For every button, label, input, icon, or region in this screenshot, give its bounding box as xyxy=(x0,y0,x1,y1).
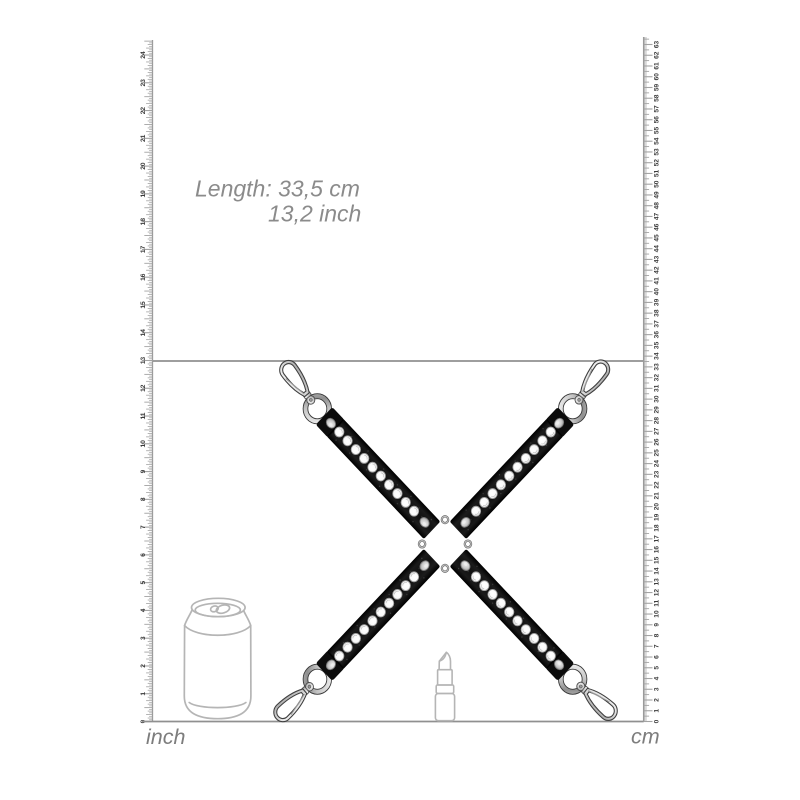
svg-text:6: 6 xyxy=(140,553,147,557)
svg-text:23: 23 xyxy=(654,470,661,478)
svg-text:39: 39 xyxy=(654,298,661,306)
svg-text:40: 40 xyxy=(654,288,661,296)
svg-text:24: 24 xyxy=(654,460,661,468)
svg-text:54: 54 xyxy=(654,137,661,145)
svg-text:22: 22 xyxy=(140,107,147,115)
svg-text:7: 7 xyxy=(140,525,147,529)
svg-text:45: 45 xyxy=(654,234,661,242)
svg-text:28: 28 xyxy=(654,417,661,425)
svg-text:17: 17 xyxy=(654,535,661,543)
svg-text:34: 34 xyxy=(654,352,661,360)
svg-text:16: 16 xyxy=(140,273,147,281)
svg-text:60: 60 xyxy=(654,73,661,81)
svg-text:5: 5 xyxy=(140,580,147,584)
svg-text:1: 1 xyxy=(140,692,147,696)
svg-text:57: 57 xyxy=(654,105,661,113)
svg-text:6: 6 xyxy=(654,655,661,659)
svg-text:36: 36 xyxy=(654,331,661,339)
svg-text:0: 0 xyxy=(654,719,661,723)
svg-text:Length: 33,5 cm: Length: 33,5 cm xyxy=(195,176,360,202)
svg-text:52: 52 xyxy=(654,159,661,167)
svg-text:24: 24 xyxy=(140,51,147,59)
svg-text:58: 58 xyxy=(654,94,661,102)
svg-text:18: 18 xyxy=(140,218,147,226)
svg-text:21: 21 xyxy=(654,492,661,500)
svg-text:47: 47 xyxy=(654,212,661,220)
svg-text:44: 44 xyxy=(654,245,661,253)
svg-text:12: 12 xyxy=(654,589,661,597)
svg-text:46: 46 xyxy=(654,223,661,231)
svg-text:43: 43 xyxy=(654,255,661,263)
svg-text:20: 20 xyxy=(140,162,147,170)
svg-text:8: 8 xyxy=(140,497,147,501)
svg-text:27: 27 xyxy=(654,427,661,435)
svg-text:29: 29 xyxy=(654,406,661,414)
svg-text:62: 62 xyxy=(654,51,661,59)
svg-text:37: 37 xyxy=(654,320,661,328)
svg-text:4: 4 xyxy=(654,676,661,680)
svg-text:61: 61 xyxy=(654,62,661,70)
svg-text:1: 1 xyxy=(654,709,661,713)
svg-text:31: 31 xyxy=(654,384,661,392)
svg-text:13,2 inch: 13,2 inch xyxy=(268,201,361,227)
svg-text:4: 4 xyxy=(140,608,147,612)
svg-text:11: 11 xyxy=(654,599,661,606)
svg-text:35: 35 xyxy=(654,341,661,349)
svg-text:49: 49 xyxy=(654,191,661,199)
svg-text:13: 13 xyxy=(654,578,661,586)
svg-text:11: 11 xyxy=(140,412,147,419)
svg-text:8: 8 xyxy=(654,633,661,637)
svg-text:41: 41 xyxy=(654,277,661,285)
svg-text:59: 59 xyxy=(654,83,661,91)
svg-text:63: 63 xyxy=(654,41,661,49)
svg-text:25: 25 xyxy=(654,449,661,457)
svg-text:16: 16 xyxy=(654,546,661,554)
svg-text:56: 56 xyxy=(654,116,661,124)
svg-text:inch: inch xyxy=(146,725,185,749)
svg-text:12: 12 xyxy=(140,384,147,392)
svg-text:53: 53 xyxy=(654,148,661,156)
svg-text:23: 23 xyxy=(140,79,147,87)
svg-text:51: 51 xyxy=(654,169,661,177)
svg-text:42: 42 xyxy=(654,266,661,274)
svg-text:15: 15 xyxy=(654,556,661,564)
svg-text:32: 32 xyxy=(654,374,661,382)
svg-text:55: 55 xyxy=(654,126,661,134)
svg-text:2: 2 xyxy=(654,698,661,702)
svg-text:30: 30 xyxy=(654,395,661,403)
svg-text:9: 9 xyxy=(654,623,661,627)
svg-text:19: 19 xyxy=(654,513,661,521)
svg-text:13: 13 xyxy=(140,356,147,364)
svg-text:3: 3 xyxy=(654,687,661,691)
svg-text:21: 21 xyxy=(140,134,147,142)
svg-text:26: 26 xyxy=(654,438,661,446)
svg-text:10: 10 xyxy=(140,440,147,448)
svg-text:7: 7 xyxy=(654,644,661,648)
svg-text:17: 17 xyxy=(140,245,147,253)
svg-text:18: 18 xyxy=(654,524,661,532)
svg-text:15: 15 xyxy=(140,301,147,309)
svg-text:20: 20 xyxy=(654,503,661,511)
svg-text:38: 38 xyxy=(654,309,661,317)
svg-text:50: 50 xyxy=(654,180,661,188)
svg-text:3: 3 xyxy=(140,636,147,640)
svg-text:22: 22 xyxy=(654,481,661,489)
svg-text:5: 5 xyxy=(654,666,661,670)
svg-text:10: 10 xyxy=(654,610,661,618)
svg-text:48: 48 xyxy=(654,202,661,210)
svg-text:14: 14 xyxy=(654,567,661,575)
svg-text:14: 14 xyxy=(140,329,147,337)
svg-text:19: 19 xyxy=(140,190,147,198)
svg-text:2: 2 xyxy=(140,664,147,668)
svg-text:33: 33 xyxy=(654,363,661,371)
svg-text:cm: cm xyxy=(631,725,660,749)
svg-text:9: 9 xyxy=(140,469,147,473)
